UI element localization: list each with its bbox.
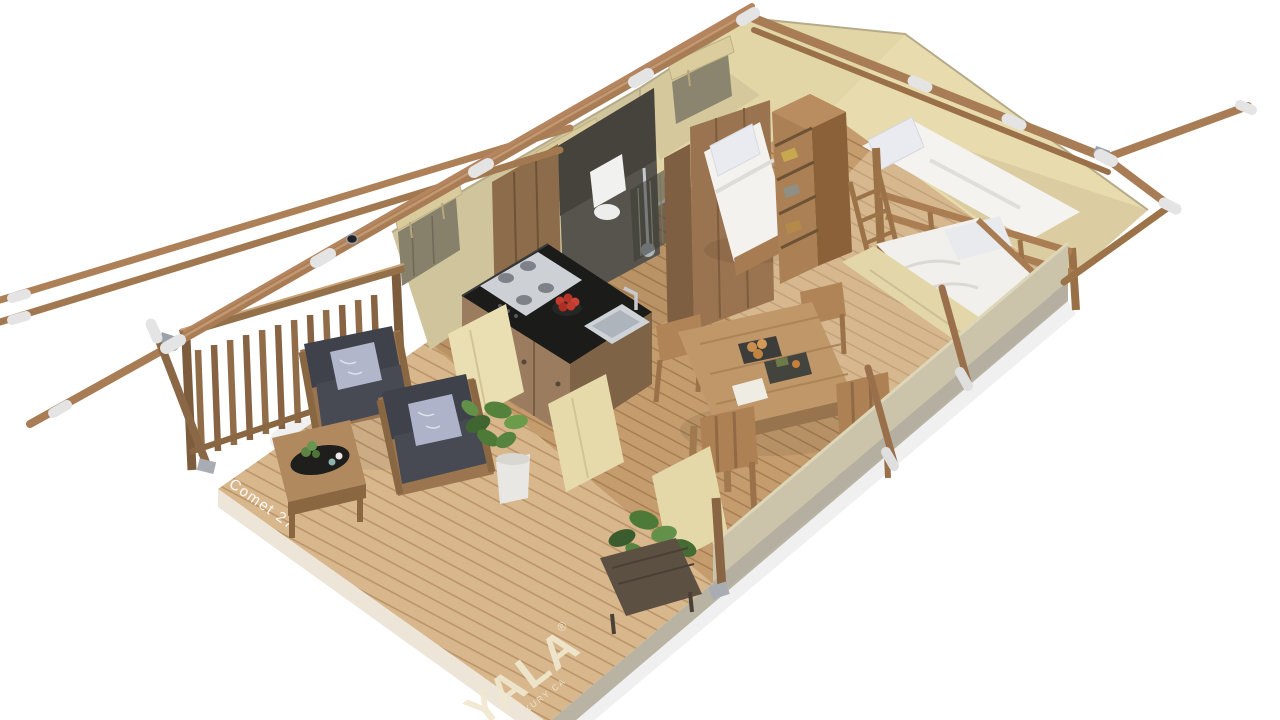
armchair-2 — [378, 374, 494, 496]
burner — [498, 273, 514, 283]
bread — [753, 349, 763, 359]
baluster — [230, 340, 234, 445]
baluster — [246, 335, 250, 440]
tray-plant — [307, 441, 317, 451]
rope-lashing — [1164, 203, 1176, 209]
chair-slat — [716, 416, 718, 472]
tray-cup — [329, 459, 336, 466]
baluster — [262, 330, 266, 434]
frame-stub — [1106, 106, 1248, 158]
chair-leg — [842, 314, 844, 354]
rope-lashing — [1240, 105, 1252, 110]
baluster — [278, 325, 282, 429]
fruit — [559, 303, 568, 312]
bathroom-wood-side — [664, 144, 694, 344]
hob-knob — [514, 314, 518, 318]
rope-lashing — [316, 254, 330, 262]
corner-pole — [716, 498, 722, 588]
burner — [516, 295, 532, 305]
render-canvas: Comet 27 YALA ® LUXURY CA — [0, 0, 1280, 720]
planter-leg — [612, 614, 614, 634]
planter-leg — [690, 592, 692, 612]
bookshelf — [772, 94, 852, 284]
rope-lashing — [886, 452, 894, 466]
fruit — [567, 302, 576, 311]
rope-lashing — [53, 405, 67, 413]
rope-lashing — [12, 316, 26, 320]
rope-lashing — [166, 340, 180, 348]
rope-lashing — [913, 81, 927, 87]
rope-lashing — [1100, 155, 1112, 161]
tray-cup — [336, 453, 343, 460]
tent-cutaway-render: Comet 27 YALA ® LUXURY CA — [0, 0, 1280, 720]
baluster — [294, 320, 298, 423]
cabinet-handle — [556, 382, 561, 387]
rope-lashing — [634, 74, 648, 82]
chair-slat — [734, 412, 736, 468]
bread — [757, 339, 767, 349]
rope-lashing — [12, 294, 26, 298]
pole-end-cap — [347, 235, 358, 244]
rope-lashing — [151, 324, 157, 338]
burner — [538, 283, 554, 293]
cabinet-handle — [522, 360, 527, 365]
rope-lashing — [474, 164, 488, 172]
rope-lashing — [742, 13, 754, 20]
burner — [520, 261, 536, 271]
rope-lashing — [960, 372, 968, 386]
food-item — [792, 360, 800, 368]
rope-lashing — [1007, 119, 1021, 125]
toilet-bowl — [594, 204, 620, 220]
pot-rim — [496, 453, 530, 465]
tray-plant — [312, 450, 320, 458]
chair-leg — [752, 462, 754, 508]
baluster — [214, 345, 218, 451]
pole-base-bracket — [197, 458, 216, 474]
